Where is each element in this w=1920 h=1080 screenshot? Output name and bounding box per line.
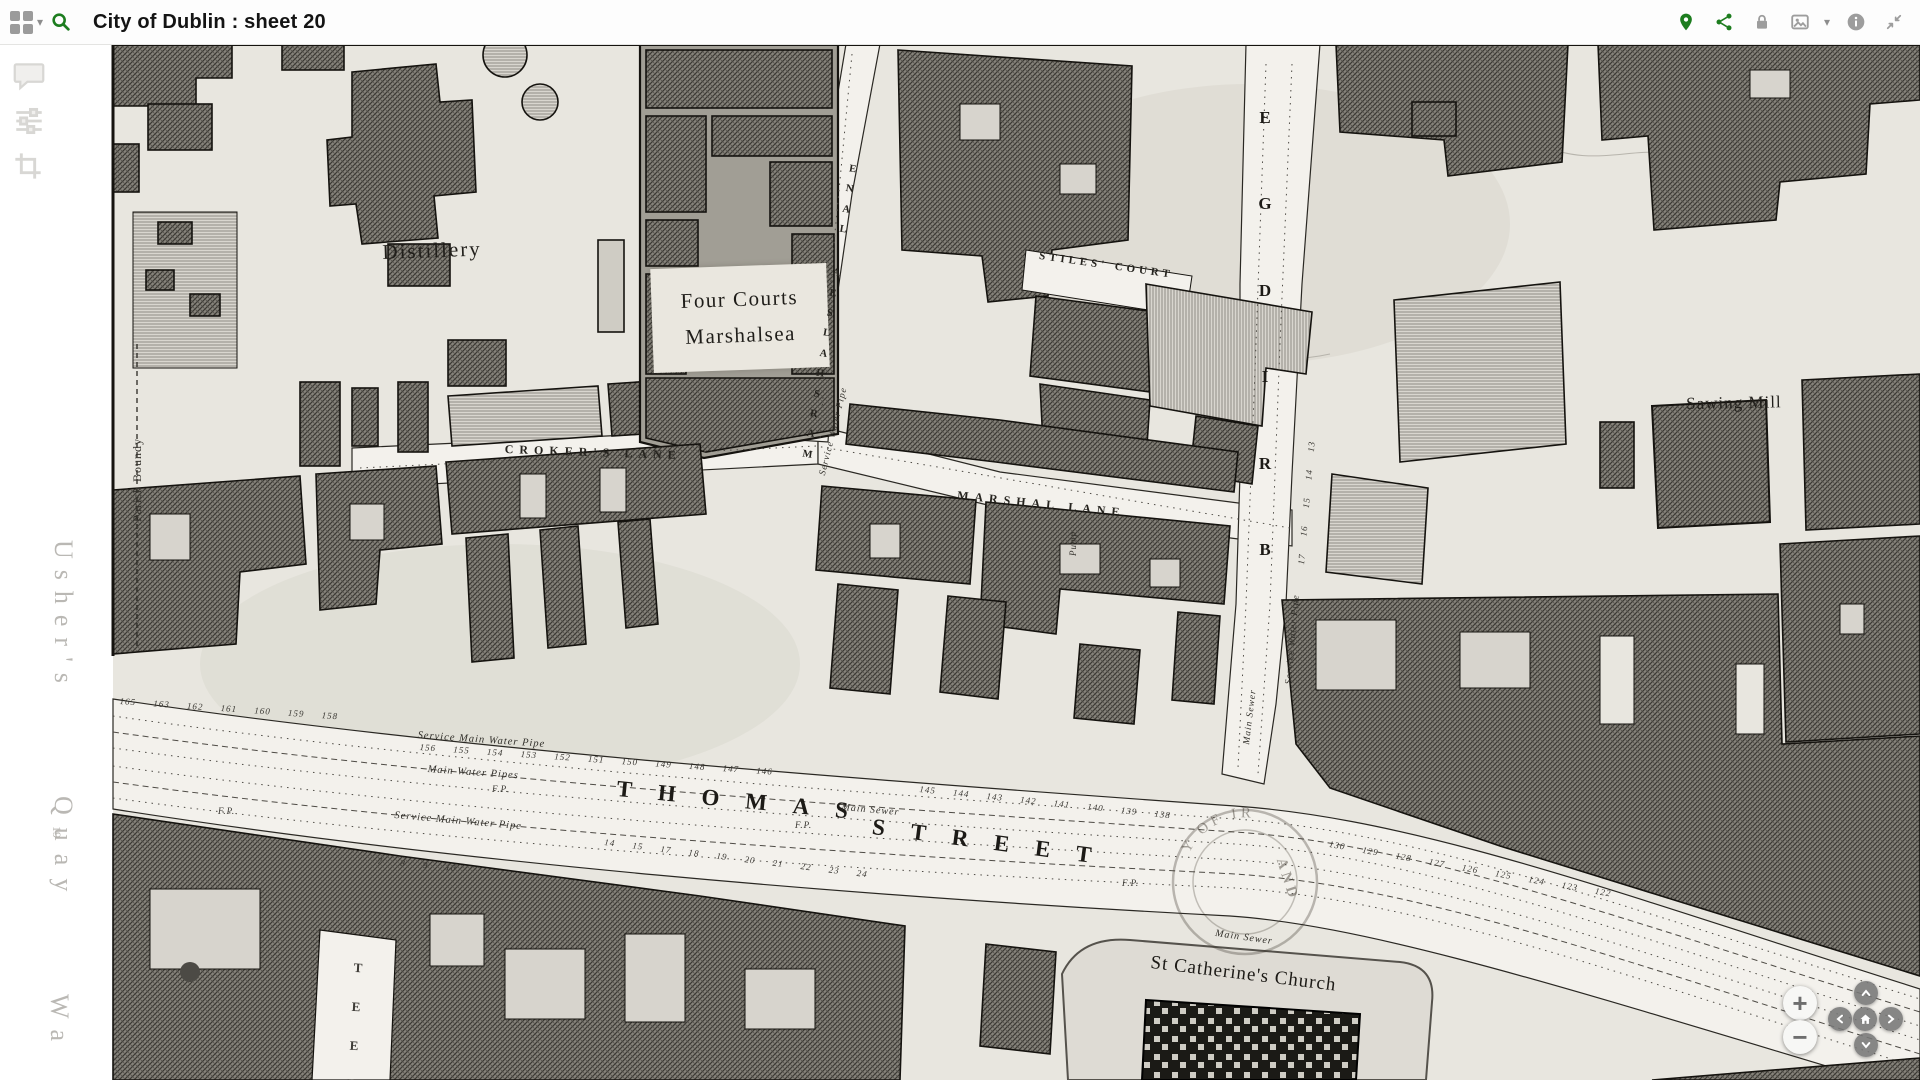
compress-icon[interactable] [1882,10,1906,34]
map-label-line: Marshalsea [685,316,797,356]
map-canvas[interactable]: Y OF IR Distillery Four Courts Marshalse… [0,44,1920,1080]
courtyard [505,949,585,1019]
building-block [113,144,139,192]
courtyard [1460,632,1530,688]
building-block [646,50,832,108]
building-block [770,162,832,226]
pan-left-button[interactable] [1828,1007,1852,1031]
building-block [598,240,624,332]
share-icon[interactable] [1712,10,1736,34]
building-block [282,44,344,70]
building-block [158,222,192,244]
building-block [398,382,428,452]
search-icon[interactable] [49,10,73,34]
yard-hatch [1394,282,1566,462]
courtyard [150,514,190,560]
historic-map-image: Y OF IR [0,44,1920,1080]
courtyard [745,969,815,1029]
adjustments-icon[interactable] [12,104,46,143]
building-block [1412,102,1456,136]
alley [1600,636,1634,724]
building-block [190,294,220,316]
map-label-distillery: Distillery [382,237,482,265]
church-building [1142,1000,1360,1080]
courtyard [150,889,260,969]
image-dropdown-chevron-icon[interactable]: ▾ [1824,15,1830,29]
street-label-bridgefoot-street: EGDIRB [1250,108,1280,560]
building-block [830,584,898,694]
map-label-sawing-mill: Sawing Mill [1686,392,1782,414]
building-block [540,526,586,648]
courtyard [870,524,900,558]
margin-label-sheet-note: 19 [49,826,64,838]
zoom-in-button[interactable]: + [1783,986,1817,1020]
location-pin-icon[interactable] [1674,10,1698,34]
courtyard [1316,620,1396,690]
building-block [1802,374,1920,530]
tree [180,962,200,982]
building-block [646,116,706,212]
building-block [1600,422,1634,488]
courtyard [350,504,384,540]
annotation-fp: F.P. [795,820,812,830]
building-block [1172,612,1220,704]
building-block [148,104,212,150]
building-block [980,944,1056,1054]
building-block [1780,536,1920,742]
gasometer [522,84,558,120]
margin-label-quay: Quay [48,796,78,904]
courtyard [960,104,1000,140]
crop-icon[interactable] [12,150,44,187]
building-block [352,388,378,446]
courtyard [1150,559,1180,587]
courtyard [625,934,685,1022]
map-label-line: Four Courts [680,280,799,320]
margin-label-quay-more: Wa [44,994,74,1054]
comment-icon[interactable] [10,58,48,101]
yard-hatch [448,386,602,446]
courtyard [1840,604,1864,634]
annotation-fp: F.P. [492,784,509,794]
pan-up-button[interactable] [1854,981,1878,1005]
annotation-pump: Pump [1068,531,1078,556]
building-block [646,220,698,266]
lock-icon[interactable] [1750,10,1774,34]
pan-down-button[interactable] [1854,1033,1878,1057]
courtyard [1750,70,1790,98]
pan-right-button[interactable] [1879,1007,1903,1031]
sawing-mill-building [1652,400,1770,528]
annotation-fp: F.P. [1122,878,1139,888]
annotation-fp: F.P. [218,806,235,816]
courtyard [1060,544,1100,574]
building-block [940,596,1006,699]
yard-hatch [1326,474,1428,584]
map-label-four-courts-marshalsea: Four Courts Marshalsea [650,263,830,373]
courtyard [520,474,546,518]
building-block [448,340,506,386]
courtyard [430,914,484,966]
building-block [146,270,174,290]
zoom-out-button[interactable]: − [1783,1020,1817,1054]
building-block [300,382,340,466]
info-icon[interactable] [1844,10,1868,34]
page-title: City of Dublin : sheet 20 [93,11,326,34]
margin-label-ushers: Usher's [48,540,78,694]
courtyard [600,468,626,512]
apps-dropdown-chevron-icon[interactable]: ▾ [37,15,43,29]
courtyard [1060,164,1096,194]
apps-grid-icon[interactable] [10,11,33,34]
image-export-icon[interactable] [1788,10,1812,34]
home-button[interactable] [1853,1007,1877,1031]
building-block [1030,296,1156,392]
map-label-parish-boundary: Parish Boundy [130,438,145,522]
building-block [1074,644,1140,724]
building-block [712,116,832,156]
top-toolbar: ▾ City of Dublin : sheet 20 ▾ [0,0,1920,45]
alley [1736,664,1764,734]
building-block [618,519,658,628]
building-block [466,534,514,662]
